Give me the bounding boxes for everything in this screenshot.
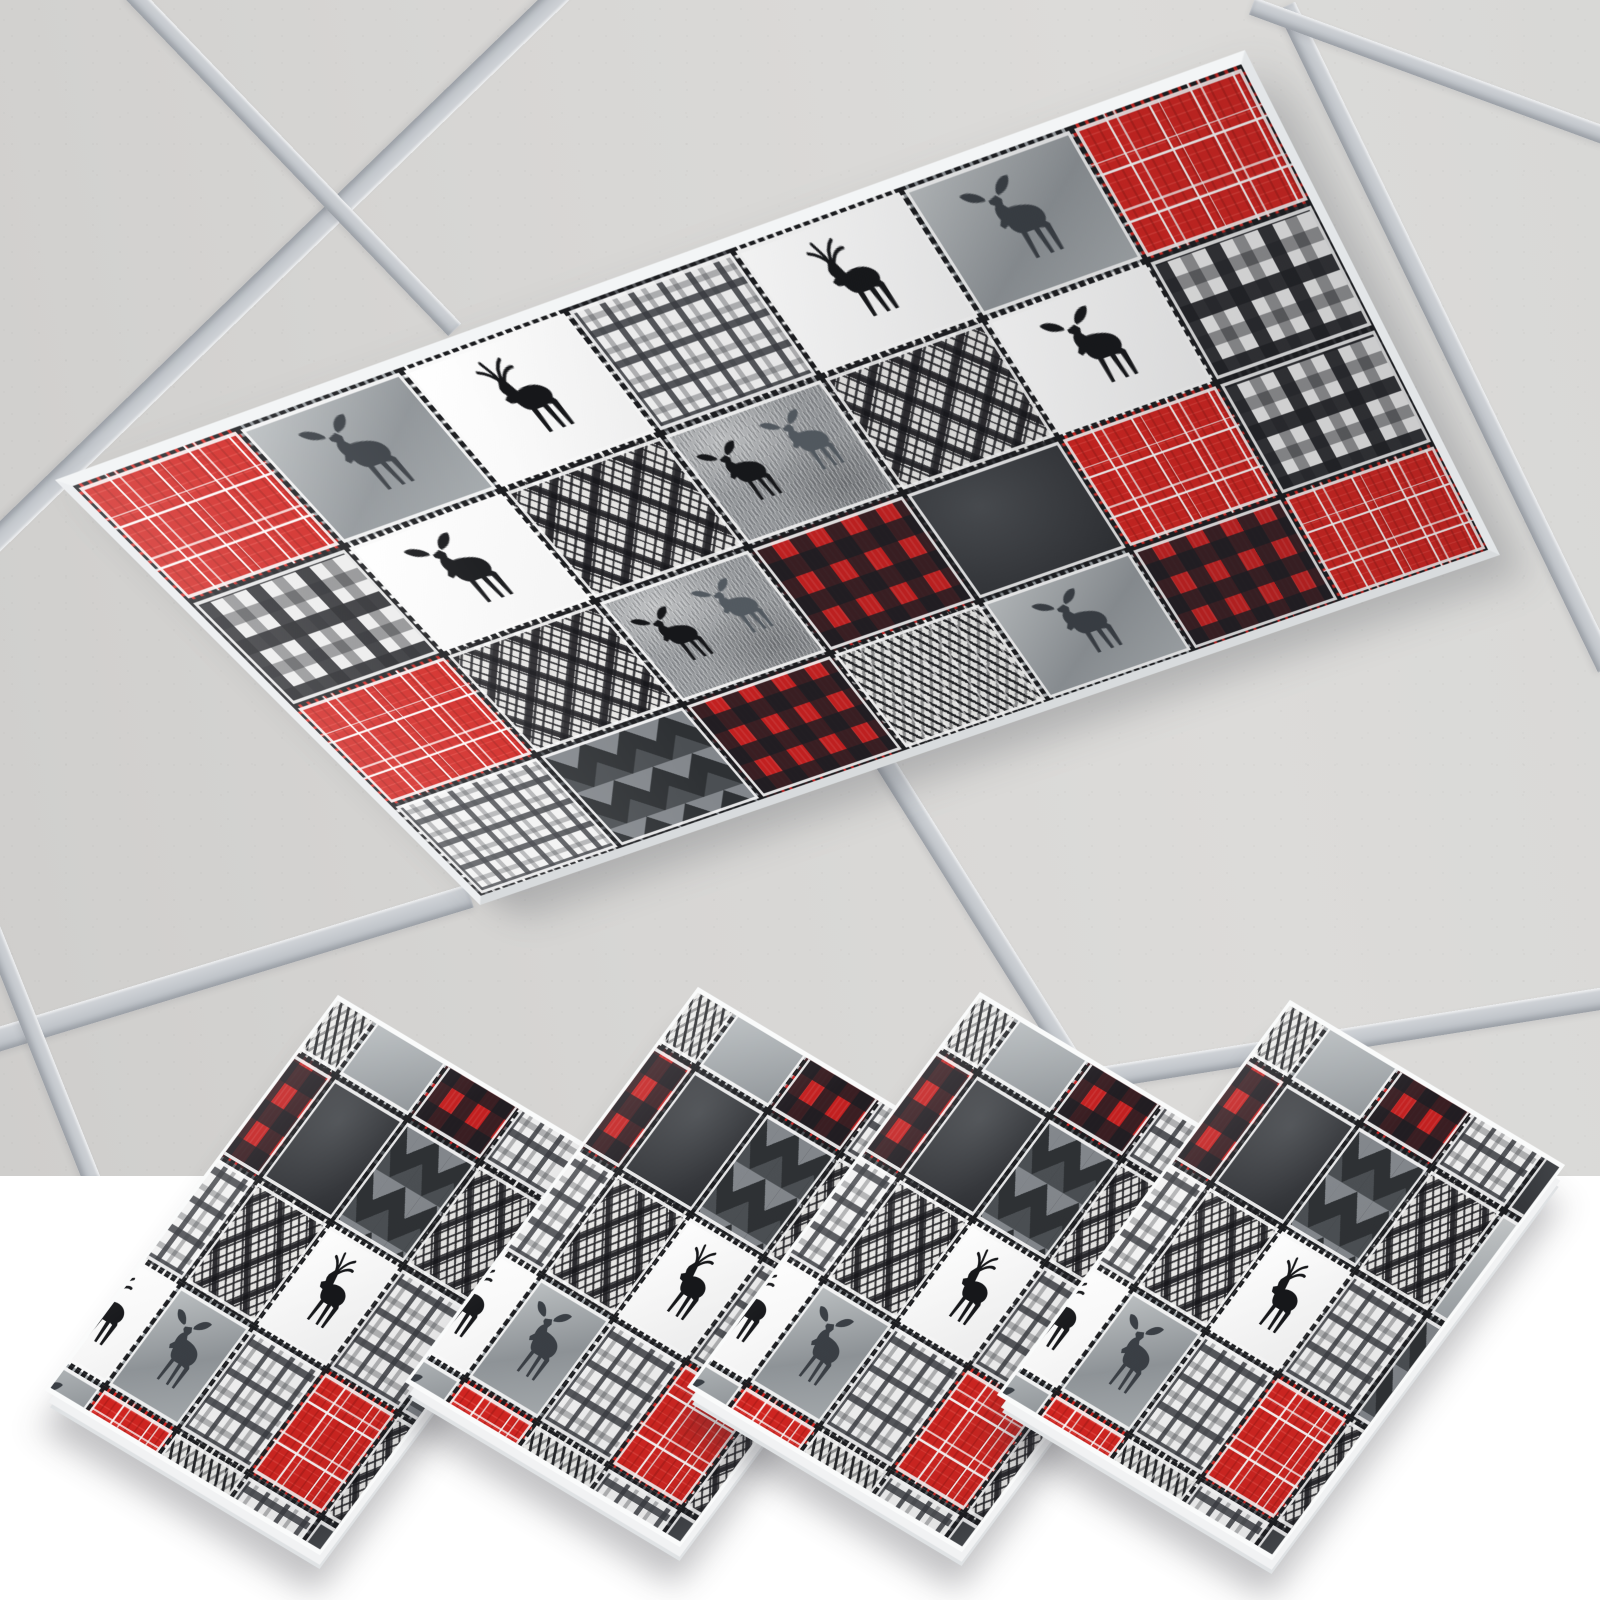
ceiling-grid-tbar bbox=[1249, 0, 1600, 144]
ceiling-grid-tbar bbox=[0, 885, 473, 1054]
ceiling-grid-tbar bbox=[0, 927, 100, 1176]
moose-icon bbox=[931, 152, 1117, 296]
deer-icon bbox=[763, 213, 953, 354]
drop-ceiling bbox=[0, 0, 1600, 1176]
moose-icon bbox=[1012, 283, 1188, 416]
product-photo bbox=[0, 0, 1600, 1600]
ceiling-grid-tbar bbox=[125, 0, 462, 336]
light-cover-panel bbox=[55, 50, 1500, 905]
moose-icon bbox=[1006, 568, 1169, 682]
cover-quilt-fabric bbox=[73, 64, 1488, 896]
